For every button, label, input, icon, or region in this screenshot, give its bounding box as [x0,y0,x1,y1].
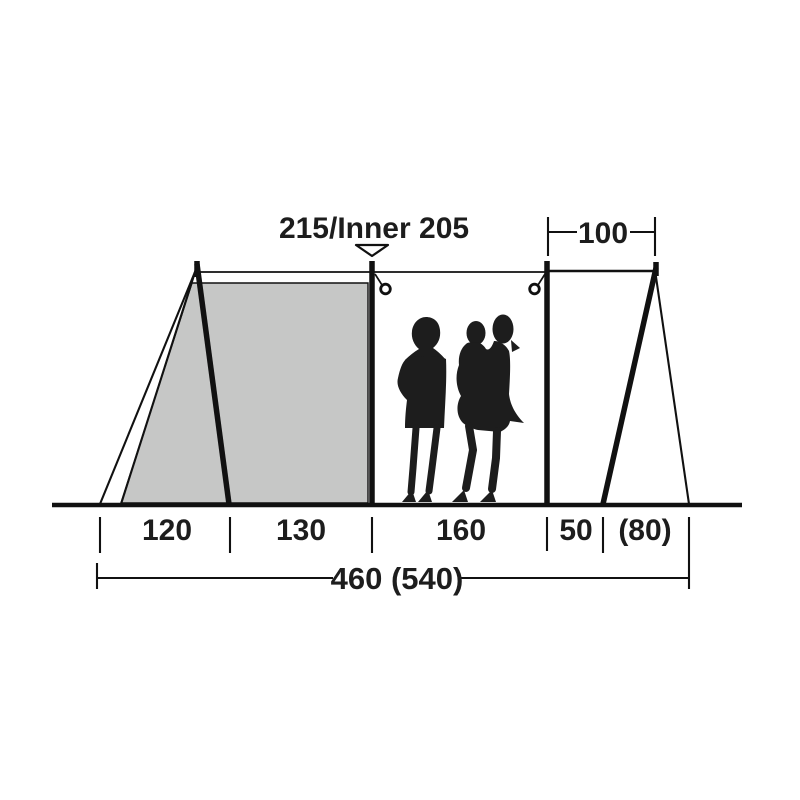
adult-leg [411,428,416,492]
diagram-canvas: 215/Inner 205 100 120 130 160 50 (80) [0,0,800,800]
ring-icon [381,284,391,294]
tent-dimension-diagram: 215/Inner 205 100 120 130 160 50 (80) [0,0,800,800]
rear-guy-line [655,270,689,504]
floor-dimension-label-3: 160 [436,514,486,547]
adult-leg [429,428,437,491]
rear-depth-dimension-label: 100 [578,217,628,250]
adult-child-body [457,341,524,432]
adult-leg [466,426,473,488]
inner-tent-panel [121,283,368,503]
adult-leg [492,431,497,489]
people-silhouette [397,315,524,503]
floor-dimension-label-2: 130 [276,514,326,547]
total-length-label: 460 (540) [331,561,464,596]
tent-structure [52,261,742,505]
adult-head [493,315,514,344]
floor-dimension-label-4: 50 [559,514,592,547]
adult-with-child-silhouette [452,315,524,503]
ring-icon [530,284,540,294]
down-triangle-icon [356,245,388,256]
floor-dimension-label-1: 120 [142,514,192,547]
adult-head [405,317,446,360]
floor-dimension-label-5: (80) [618,514,671,547]
adult-hair-tail [511,340,520,352]
adult-torso [397,356,446,428]
adult-silhouette [397,317,446,502]
child-head [467,321,486,345]
ring-cord-right [538,274,545,285]
total-length-dimension: 460 (540) [97,561,689,596]
rear-pole [603,268,656,504]
height-dimension-label: 215/Inner 205 [279,212,469,245]
ring-cord-left [375,274,382,285]
rear-depth-dimension: 100 [548,217,655,256]
